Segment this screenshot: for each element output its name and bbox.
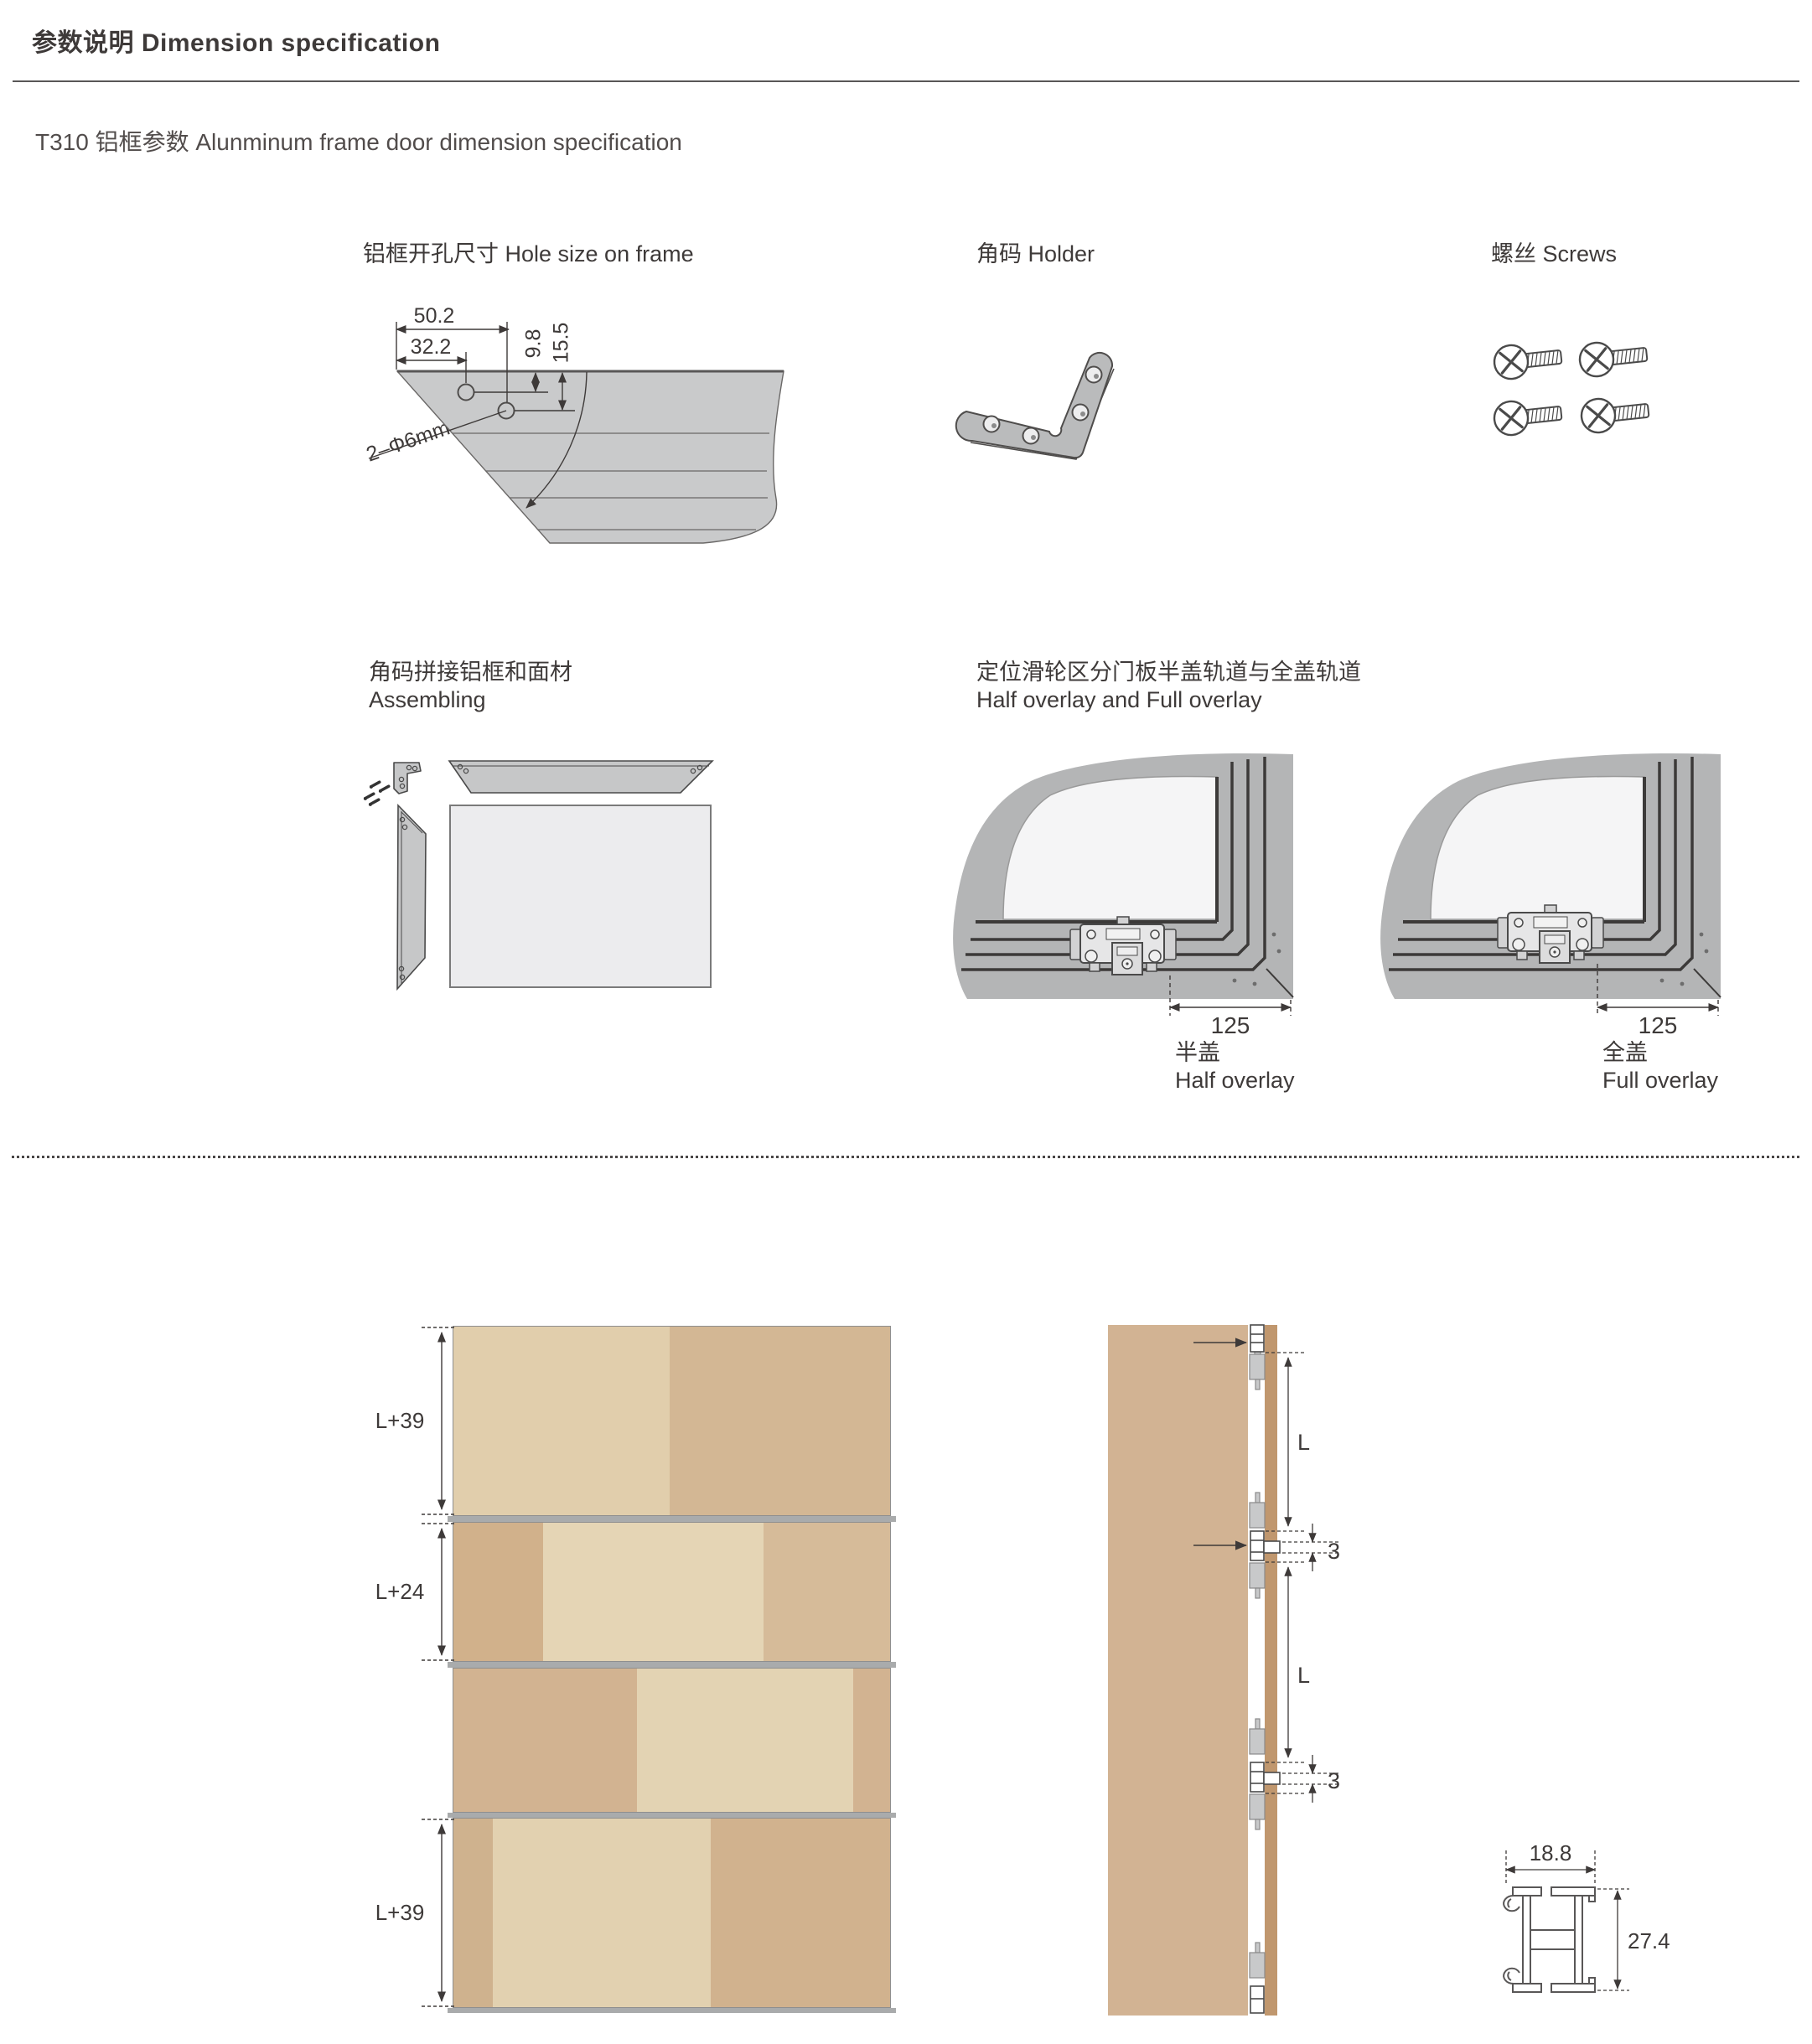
hole-size-drawing (369, 322, 784, 543)
holder-drawing (956, 353, 1114, 459)
diagram-canvas (0, 0, 1812, 2044)
h-profile-drawing (1504, 1850, 1629, 1992)
screws-drawing (1493, 338, 1650, 437)
screw-3 (1493, 396, 1563, 437)
overlay-full-image (1380, 753, 1721, 999)
side-view-drawing (1108, 1325, 1341, 2016)
overlay-half-image (953, 753, 1293, 999)
screw-2 (1578, 338, 1649, 378)
panel-stack-dimensions (422, 1327, 454, 2006)
side-view-rollers (1250, 1349, 1265, 1978)
assembling-drawing (364, 761, 712, 989)
screw-1 (1493, 340, 1563, 380)
assembling-face-panel (450, 805, 711, 987)
screw-4 (1580, 394, 1650, 434)
door-edge-strip (1265, 1325, 1277, 2016)
cabinet-side-panel (1108, 1325, 1248, 2016)
